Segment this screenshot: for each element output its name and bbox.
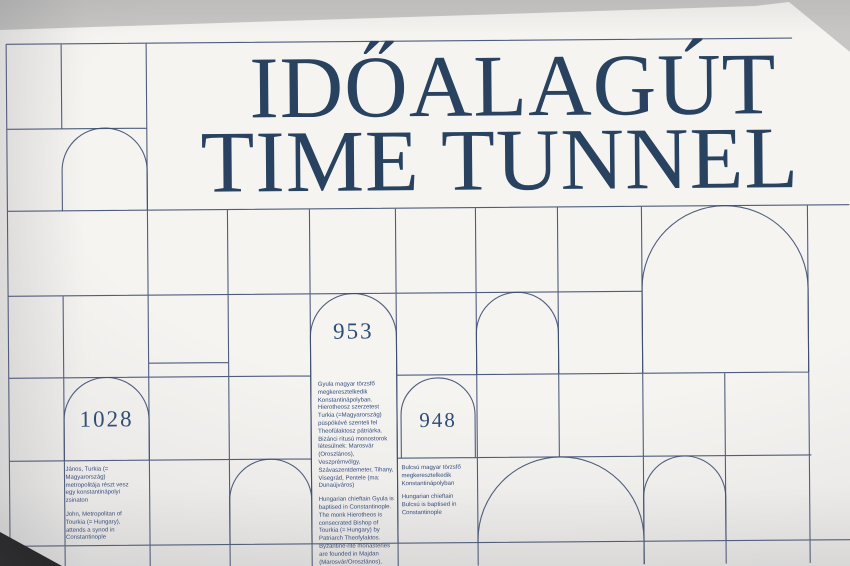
event-caption-948: Bulcsú magyar törzsfő megkeresztelkedik … <box>401 465 471 524</box>
year-label-1028: 1028 <box>64 406 149 433</box>
event-948-english-text: Hungarian chieftain Bulcsú is baptised i… <box>402 494 472 518</box>
title-english: TIME TUNNEL <box>200 122 799 201</box>
event-953-hungarian-text: Gyula magyar törzsfő megkeresztelkedik K… <box>318 381 395 491</box>
event-953-english-text: Hungarian chieftain Gyula is baptised in… <box>319 496 396 566</box>
year-label-953: 953 <box>310 318 396 345</box>
event-caption-953: Gyula magyar törzsfő megkeresztelkedik K… <box>318 381 396 566</box>
photo-of-timeline-poster: IDŐALAGÚT TIME TUNNEL 1028 953 948 János… <box>0 0 850 566</box>
event-1028-english-text: John, Metropolitan of Tourkia (= Hungary… <box>66 511 134 543</box>
event-948-hungarian-text: Bulcsú magyar törzsfő megkeresztelkedik … <box>401 465 471 489</box>
poster-content: IDŐALAGÚT TIME TUNNEL 1028 953 948 János… <box>0 0 850 566</box>
poster-title: IDŐALAGÚT TIME TUNNEL <box>158 41 799 208</box>
event-1028-hungarian-text: János, Turkia (= Magyarország) metropoli… <box>65 466 133 506</box>
poster-sheet: IDŐALAGÚT TIME TUNNEL 1028 953 948 János… <box>0 0 850 566</box>
event-caption-1028: János, Turkia (= Magyarország) metropoli… <box>65 466 134 549</box>
year-label-948: 948 <box>401 408 475 434</box>
